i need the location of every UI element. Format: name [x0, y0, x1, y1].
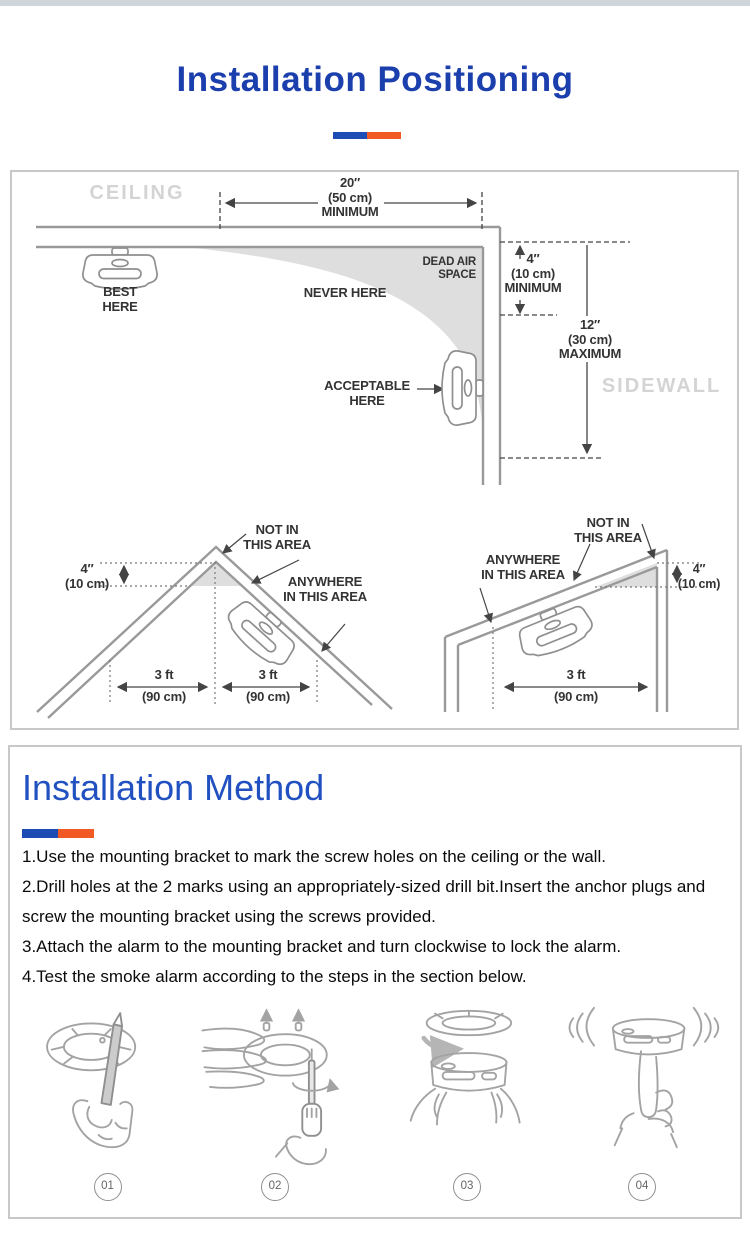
slope-dim-4in-label: 4″ (10 cm): [664, 562, 734, 591]
test-alarm-illustration: [562, 1002, 722, 1169]
dim-20in-label: 20″ (50 cm) MINIMUM: [290, 176, 410, 220]
acceptable-here-label: ACCEPTABLE HERE: [302, 379, 432, 408]
best-here-label: BEST HERE: [70, 285, 170, 314]
divider-orange-segment: [367, 132, 401, 139]
divider-orange-segment: [58, 829, 94, 838]
dead-air-space-label: DEAD AIR SPACE: [388, 256, 476, 281]
divider-blue-segment: [333, 132, 367, 139]
mark-holes-illustration: [33, 1009, 183, 1169]
method-step: 3.Attach the alarm to the mounting brack…: [22, 932, 730, 962]
sound-waves-left: [570, 1008, 594, 1046]
top-bar: [0, 0, 750, 6]
dim-12in-max-label: 12″ (30 cm) MAXIMUM: [535, 318, 645, 362]
section-divider: [333, 132, 401, 139]
screw-bracket-illustration: [195, 1002, 355, 1169]
figure-attach-alarm: 03: [382, 1002, 552, 1201]
peak-left-3ft-label: 3 ft: [134, 668, 194, 683]
step-number-badge: 03: [453, 1173, 481, 1201]
page-title: Installation Positioning: [0, 60, 750, 100]
step-number-badge: 04: [628, 1173, 656, 1201]
sound-waves-right: [694, 1008, 718, 1046]
figure-screw-bracket: 02: [185, 1002, 365, 1201]
method-title: Installation Method: [22, 767, 324, 809]
peak-right-90cm-label: (90 cm): [238, 690, 298, 705]
figure-mark-holes: 01: [25, 1009, 190, 1201]
divider-blue-segment: [22, 829, 58, 838]
ceiling-label: CEILING: [72, 182, 202, 204]
slope-anywhere-label: ANYWHERE IN THIS AREA: [448, 553, 598, 582]
slope-90cm-label: (90 cm): [534, 690, 618, 705]
method-divider: [22, 829, 94, 838]
page-root: Installation Positioning: [0, 0, 750, 1237]
slope-3ft-label: 3 ft: [534, 668, 618, 683]
step-number-badge: 01: [94, 1173, 122, 1201]
positioning-diagram: [12, 172, 737, 728]
dim-4in-min-label: 4″ (10 cm) MINIMUM: [478, 252, 588, 296]
never-here-label: NEVER HERE: [285, 286, 405, 301]
method-step: 1.Use the mounting bracket to mark the s…: [22, 842, 730, 872]
peak-dim-4in-label: 4″ (10 cm): [42, 562, 132, 591]
method-step: 2.Drill holes at the 2 marks using an ap…: [22, 872, 730, 932]
positioning-panel: CEILING 20″ (50 cm) MINIMUM BEST HERE NE…: [10, 170, 739, 730]
method-steps: 1.Use the mounting bracket to mark the s…: [22, 842, 730, 992]
peak-left-90cm-label: (90 cm): [134, 690, 194, 705]
peak-not-in-label: NOT IN THIS AREA: [212, 523, 342, 552]
slope-not-in-label: NOT IN THIS AREA: [543, 516, 673, 545]
figure-test-alarm: 04: [552, 1002, 732, 1201]
step-number-badge: 02: [261, 1173, 289, 1201]
attach-alarm-illustration: [390, 1002, 545, 1169]
peak-right-3ft-label: 3 ft: [238, 668, 298, 683]
peak-dead-air-region: [190, 562, 242, 586]
method-panel: Installation Method 1.Use the mounting b…: [8, 745, 742, 1219]
smoke-detector-ceiling-icon: [83, 248, 157, 289]
peak-anywhere-label: ANYWHERE IN THIS AREA: [250, 575, 400, 604]
method-step: 4.Test the smoke alarm according to the …: [22, 962, 730, 992]
sidewall-label: SIDEWALL: [594, 375, 729, 397]
